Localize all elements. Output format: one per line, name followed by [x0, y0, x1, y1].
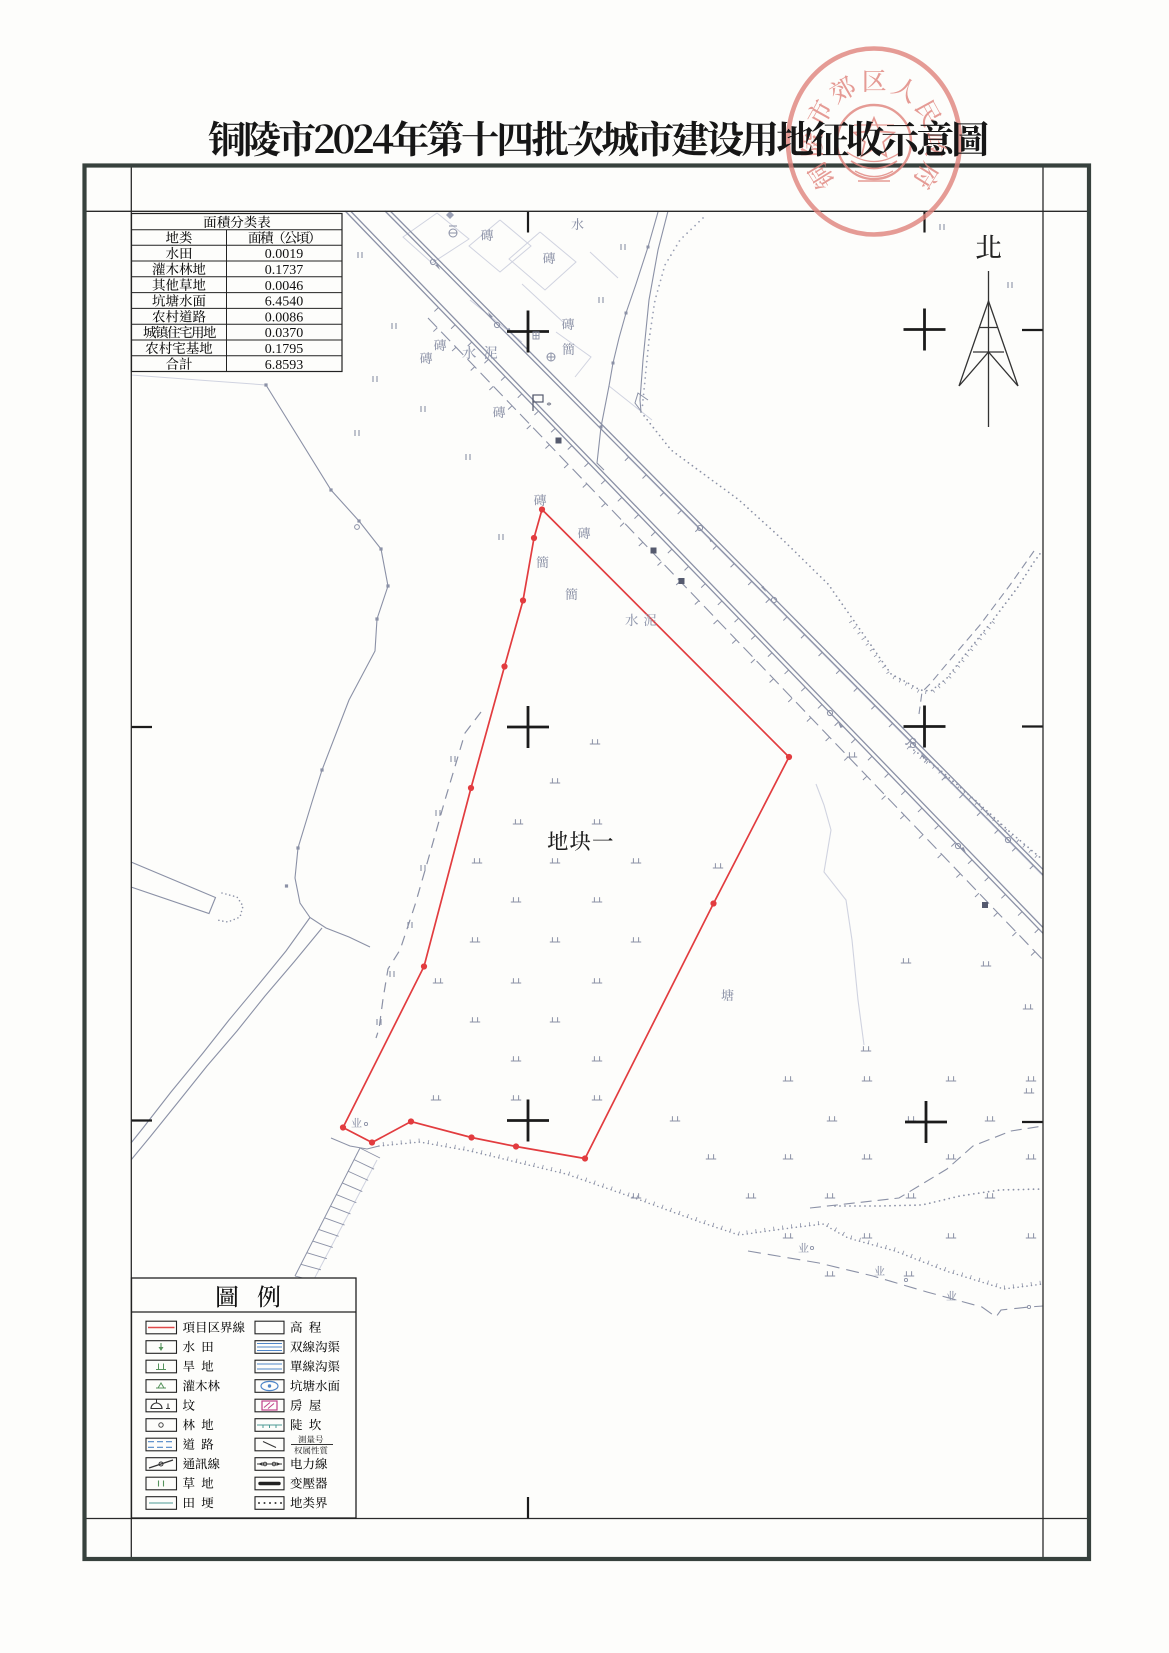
svg-text:0.1737: 0.1737	[265, 263, 304, 278]
svg-text:*: *	[546, 400, 552, 412]
svg-text:0.0370: 0.0370	[265, 326, 304, 341]
svg-text:0.1795: 0.1795	[265, 342, 304, 357]
svg-text:0.0086: 0.0086	[265, 310, 304, 325]
svg-text:0.0046: 0.0046	[265, 279, 304, 294]
svg-text:6.4540: 6.4540	[265, 295, 304, 310]
svg-text:6.8593: 6.8593	[265, 358, 304, 373]
svg-text:0.0019: 0.0019	[265, 247, 304, 262]
